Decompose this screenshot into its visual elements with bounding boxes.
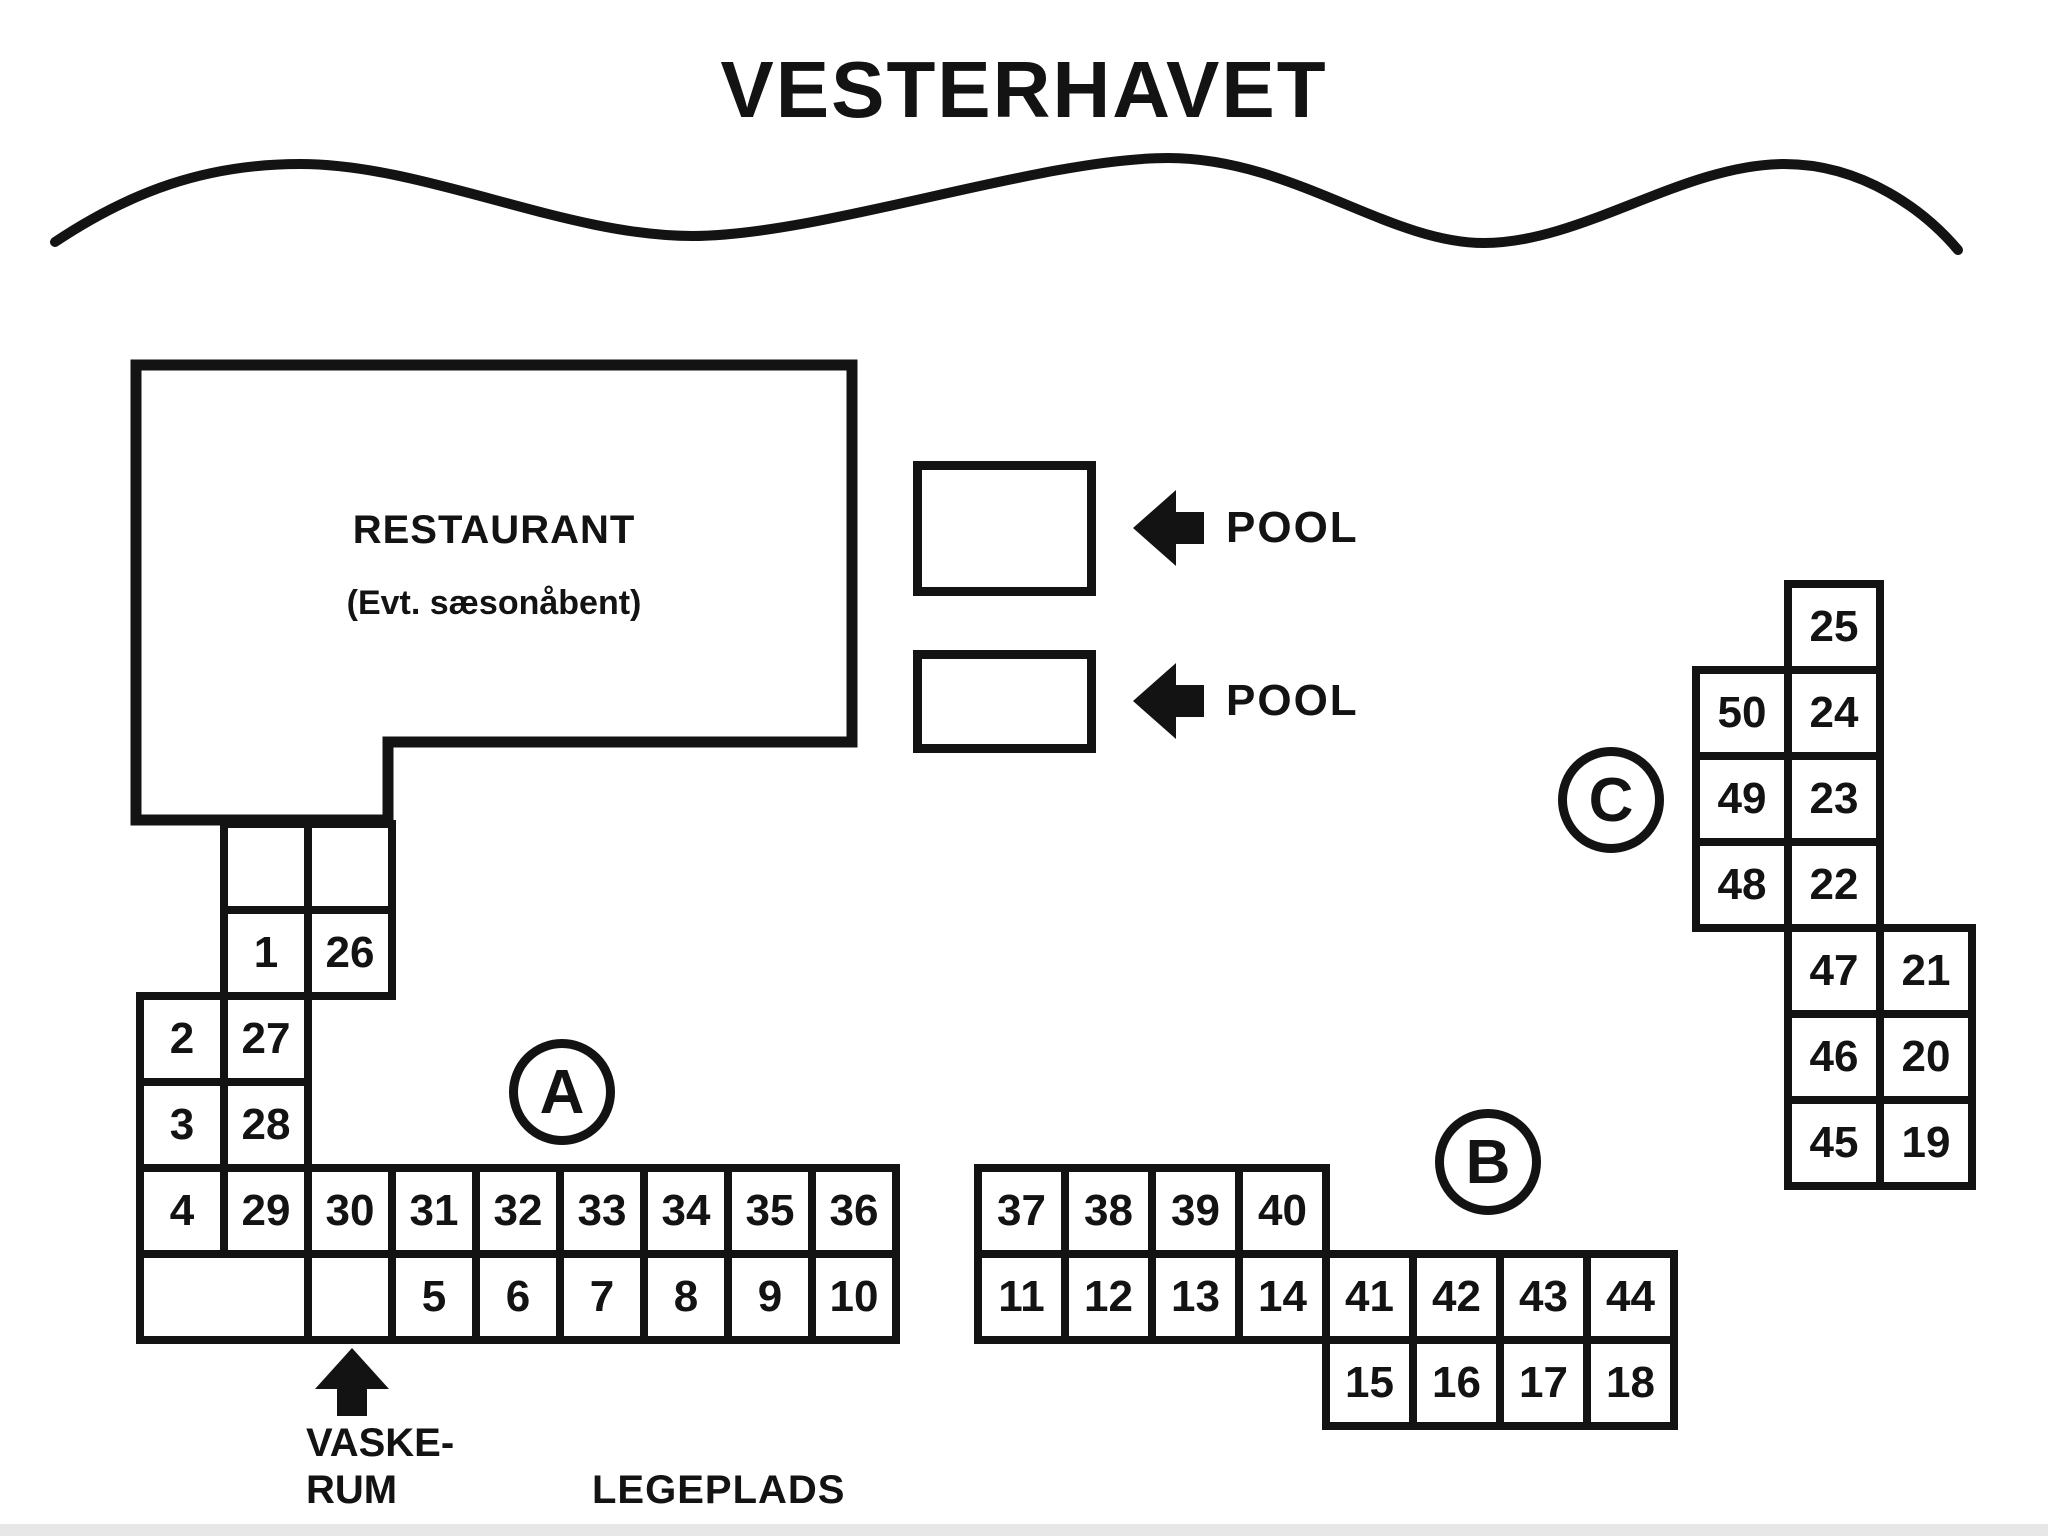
plot-cell-21: 21 [1876,924,1976,1018]
restaurant-season-note: (Evt. sæsonåbent) [136,584,852,623]
playground-label: LEGEPLADS [592,1468,845,1513]
pool-label-lower: POOL [1226,676,1359,726]
plot-cell-3: 3 [136,1078,228,1172]
plot-cell-32: 32 [472,1164,564,1258]
sea-wave-line [55,158,1958,250]
plot-cell-14: 14 [1235,1250,1330,1344]
plot-cell-16: 16 [1409,1336,1504,1430]
laundry-room-line1: VASKE- [306,1420,454,1467]
section-c-badge: C [1558,747,1664,853]
plot-cell-49: 49 [1692,752,1792,846]
pool-label-upper: POOL [1226,503,1359,553]
section-b-badge: B [1435,1109,1541,1215]
section-a-letter: A [540,1057,585,1128]
plot-cell-unnumbered [304,1250,396,1344]
plot-cell-unnumbered [136,1250,312,1344]
plot-cell-8: 8 [640,1250,732,1344]
plot-cell-48: 48 [1692,838,1792,932]
plot-cell-24: 24 [1784,666,1884,760]
plot-cell-15: 15 [1322,1336,1417,1430]
plot-cell-10: 10 [808,1250,900,1344]
plot-cell-41: 41 [1322,1250,1417,1344]
laundry-room-label: VASKE- RUM [306,1420,454,1514]
plot-cell-43: 43 [1496,1250,1591,1344]
plot-cell-44: 44 [1583,1250,1678,1344]
plot-cell-13: 13 [1148,1250,1243,1344]
plot-cell-31: 31 [388,1164,480,1258]
plot-cell-35: 35 [724,1164,816,1258]
plot-cell-38: 38 [1061,1164,1156,1258]
restaurant-label: RESTAURANT [136,508,852,553]
pool-box-upper [913,461,1096,596]
plot-cell-29: 29 [220,1164,312,1258]
plot-cell-39: 39 [1148,1164,1243,1258]
plot-cell-47: 47 [1784,924,1884,1018]
pool-arrow-icon [1133,663,1204,739]
section-b-letter: B [1466,1127,1511,1198]
plot-cell-17: 17 [1496,1336,1591,1430]
section-c-letter: C [1589,765,1634,836]
plot-cell-46: 46 [1784,1010,1884,1104]
plot-cell-12: 12 [1061,1250,1156,1344]
plot-cell-unnumbered [304,820,396,914]
plot-cell-36: 36 [808,1164,900,1258]
plot-cell-unnumbered [220,820,312,914]
plot-cell-20: 20 [1876,1010,1976,1104]
plot-cell-4: 4 [136,1164,228,1258]
laundry-room-line2: RUM [306,1467,454,1514]
plot-cell-34: 34 [640,1164,732,1258]
laundry-arrow-icon [315,1348,389,1416]
plot-cell-27: 27 [220,992,312,1086]
section-a-badge: A [509,1039,615,1145]
site-map: VESTERHAVET RESTAURANT (Evt. sæsonåbent)… [0,0,2048,1536]
plot-cell-50: 50 [1692,666,1792,760]
plot-cell-2: 2 [136,992,228,1086]
plot-cell-7: 7 [556,1250,648,1344]
plot-cell-33: 33 [556,1164,648,1258]
plot-cell-6: 6 [472,1250,564,1344]
pool-box-lower [913,650,1096,753]
plot-cell-19: 19 [1876,1096,1976,1190]
plot-cell-9: 9 [724,1250,816,1344]
plot-cell-37: 37 [974,1164,1069,1258]
plot-cell-18: 18 [1583,1336,1678,1430]
plot-cell-25: 25 [1784,580,1884,674]
plot-cell-5: 5 [388,1250,480,1344]
pool-arrow-icon [1133,490,1204,566]
plot-cell-23: 23 [1784,752,1884,846]
plot-cell-28: 28 [220,1078,312,1172]
plot-cell-1: 1 [220,906,312,1000]
page-title: VESTERHAVET [0,44,2048,136]
plot-cell-42: 42 [1409,1250,1504,1344]
plot-cell-26: 26 [304,906,396,1000]
plot-cell-11: 11 [974,1250,1069,1344]
plot-cell-22: 22 [1784,838,1884,932]
plot-cell-45: 45 [1784,1096,1884,1190]
bottom-edge-strip [0,1524,2048,1536]
plot-cell-30: 30 [304,1164,396,1258]
plot-cell-40: 40 [1235,1164,1330,1258]
